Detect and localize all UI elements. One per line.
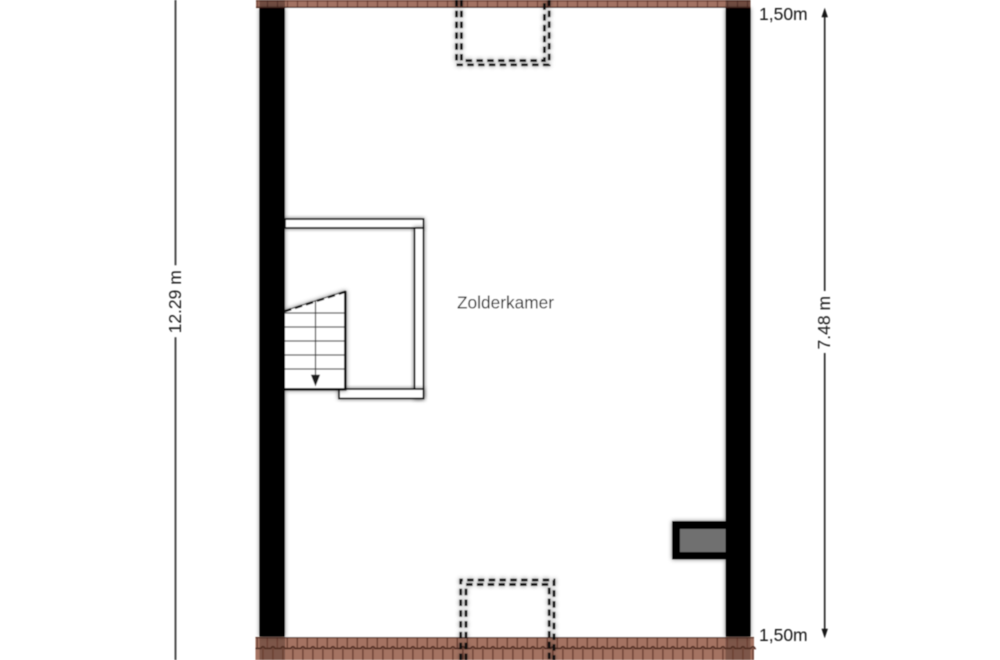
svg-text:1,50m: 1,50m (759, 625, 808, 645)
svg-text:12.29 m: 12.29 m (165, 270, 185, 333)
svg-text:Zolderkamer: Zolderkamer (457, 293, 554, 313)
svg-text:1,50m: 1,50m (759, 4, 808, 24)
svg-text:7.48 m: 7.48 m (814, 296, 834, 350)
